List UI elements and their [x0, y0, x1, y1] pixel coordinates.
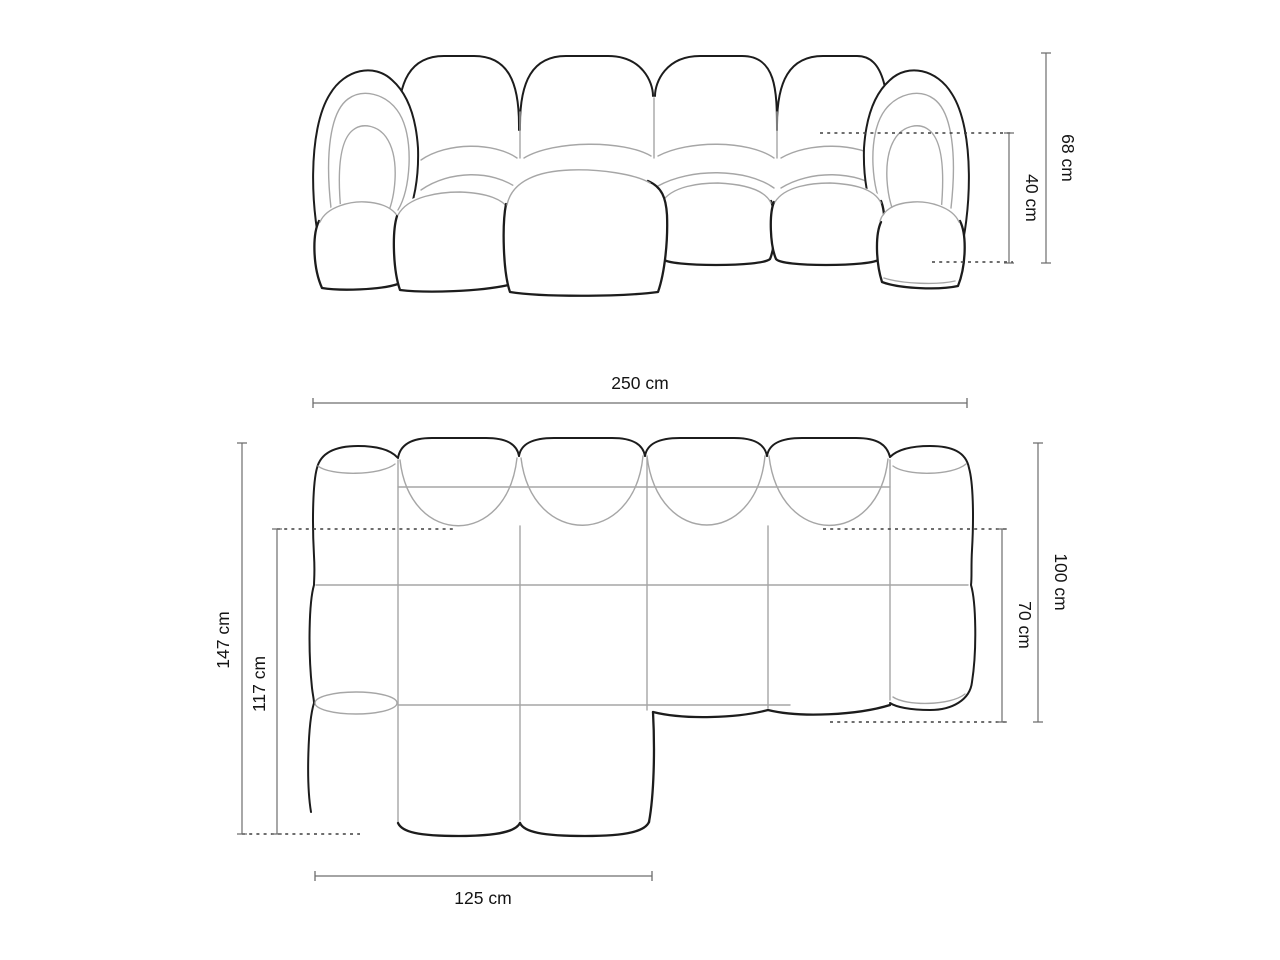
plan-dimension-chaise-width: 125 cm — [315, 871, 652, 908]
plan-body-fill — [318, 460, 960, 828]
seat-depth-label: 70 cm — [1015, 601, 1035, 649]
right-arm-front-bubble-fill — [877, 202, 965, 288]
plan-dimension-seat-depth: 70 cm — [997, 529, 1035, 722]
plan-back-cushions — [398, 438, 890, 470]
left-arm-front-bubble-fill — [314, 202, 403, 290]
chaise-front-seat-fill — [504, 169, 668, 295]
plan-front-edge — [653, 710, 768, 717]
seat-height-label: 40 cm — [1022, 174, 1042, 222]
right-seat-fill — [771, 184, 888, 265]
plan-front-edge — [768, 705, 890, 715]
plan-back-cushion-fill — [398, 438, 519, 470]
plan-view: 250 cm 147 cm 117 cm 100 cm 70 cm — [213, 373, 1071, 908]
sofa-dimension-diagram: 68 cm 40 cm — [0, 0, 1280, 960]
front-dimension-total-height: 68 cm — [1041, 53, 1078, 263]
plan-left-arm-fill — [308, 446, 398, 835]
body-depth-label: 100 cm — [1051, 553, 1071, 610]
front-dimension-seat-height: 40 cm — [1004, 133, 1042, 263]
total-width-label: 250 cm — [611, 373, 668, 393]
plan-dimension-body-depth: 100 cm — [1033, 443, 1071, 722]
total-height-label: 68 cm — [1058, 134, 1078, 182]
chaise-seat-fill — [394, 193, 516, 292]
plan-back-cushion-fill — [767, 438, 890, 470]
plan-dimension-chaise-inner-depth: 117 cm — [249, 529, 282, 834]
plan-dimension-total-width: 250 cm — [313, 373, 967, 408]
diagram-canvas: 68 cm 40 cm — [0, 0, 1280, 960]
total-depth-label: 147 cm — [213, 611, 233, 668]
plan-back-cushion-fill — [645, 438, 767, 470]
plan-left-armrest — [308, 446, 398, 835]
plan-dimension-total-depth: 147 cm — [213, 443, 247, 834]
plan-right-arm-fill — [890, 446, 975, 710]
right-seat-fill — [658, 184, 775, 265]
front-elevation-view: 68 cm 40 cm — [313, 53, 1078, 296]
plan-back-cushion-fill — [519, 438, 645, 470]
chaise-inner-depth-label: 117 cm — [249, 656, 269, 712]
chaise-width-label: 125 cm — [454, 888, 511, 908]
plan-right-armrest — [890, 446, 975, 710]
